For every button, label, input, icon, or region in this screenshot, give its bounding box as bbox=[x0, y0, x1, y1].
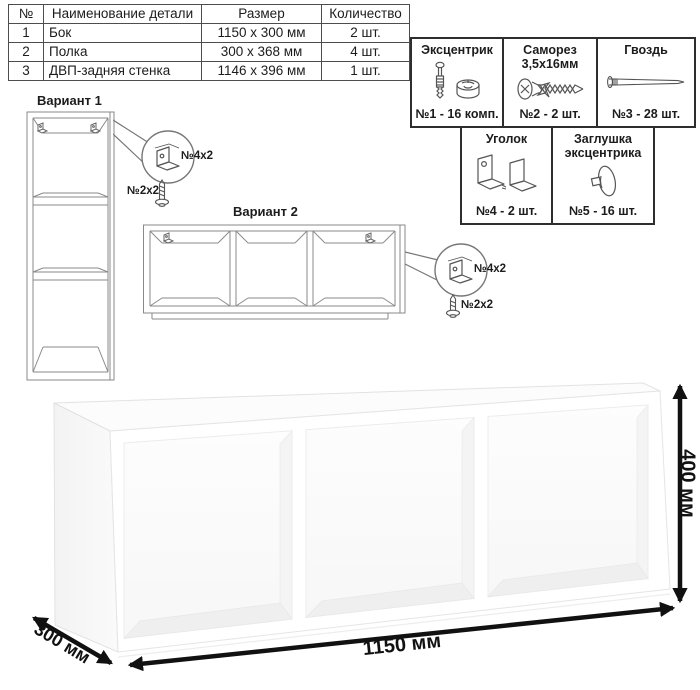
height-dimension-label: 400 мм bbox=[676, 445, 699, 523]
table-row: 2 Полка 300 х 368 мм 4 шт. bbox=[9, 43, 410, 62]
part-qty: 2 шт. bbox=[322, 24, 410, 43]
hardware-count: №1 - 16 комп. bbox=[415, 107, 498, 121]
header-name: Наименование детали bbox=[44, 5, 202, 24]
parts-table: № Наименование детали Размер Количество … bbox=[8, 4, 410, 81]
cam-cap-icon bbox=[553, 160, 653, 204]
angle-bracket-icon bbox=[462, 146, 551, 204]
table-row: 3 ДВП-задняя стенка 1146 х 396 мм 1 шт. bbox=[9, 62, 410, 81]
variant1-callout bbox=[113, 118, 235, 218]
variant2-shelf-drawing bbox=[142, 222, 410, 326]
corner-bracket-icon bbox=[38, 123, 100, 133]
screw-icon bbox=[447, 295, 460, 317]
table-row: 1 Бок 1150 х 300 мм 2 шт. bbox=[9, 24, 410, 43]
nail-icon bbox=[598, 57, 694, 107]
hardware-title: Эксцентрик bbox=[421, 43, 493, 57]
shelf-left-face bbox=[54, 403, 118, 652]
variant2-bracket-label: №4х2 bbox=[474, 263, 506, 275]
part-name: ДВП-задняя стенка bbox=[44, 62, 202, 81]
part-num: 2 bbox=[9, 43, 44, 62]
variant1-screw-label: №2х2 bbox=[127, 185, 159, 197]
header-qty: Количество bbox=[322, 5, 410, 24]
variant1-bracket-label: №4х2 bbox=[181, 150, 213, 162]
hardware-cell-cam-cap: Заглушкаэксцентрика №5 - 16 шт. bbox=[551, 126, 655, 225]
part-name: Полка bbox=[44, 43, 202, 62]
part-qty: 1 шт. bbox=[322, 62, 410, 81]
hardware-count: №5 - 16 шт. bbox=[569, 204, 637, 218]
header-num: № bbox=[9, 5, 44, 24]
variant1-shelf-drawing bbox=[20, 110, 118, 384]
shelf-3d-render bbox=[30, 372, 700, 672]
variant1-title: Вариант 1 bbox=[37, 93, 102, 108]
hardware-cell-screw: Саморез3,5х16мм №2 - 2 шт. bbox=[502, 37, 598, 128]
hardware-cell-nail: Гвоздь №3 - 28 шт. bbox=[596, 37, 696, 128]
hardware-title: Заглушка bbox=[565, 132, 642, 146]
variant2-screw-label: №2х2 bbox=[461, 299, 493, 311]
part-size: 300 х 368 мм bbox=[202, 43, 322, 62]
part-qty: 4 шт. bbox=[322, 43, 410, 62]
part-size: 1146 х 396 мм bbox=[202, 62, 322, 81]
parts-table-header-row: № Наименование детали Размер Количество bbox=[9, 5, 410, 24]
hardware-count: №2 - 2 шт. bbox=[519, 107, 580, 121]
hardware-box-row-1: Эксцентрик bbox=[410, 37, 696, 128]
screw-icon bbox=[504, 71, 596, 107]
variant2-title: Вариант 2 bbox=[233, 204, 298, 219]
corner-bracket-icon bbox=[164, 233, 375, 243]
hardware-title: Уголок bbox=[486, 132, 527, 146]
hardware-cell-angle-bracket: Уголок №4 - 2 шт. bbox=[460, 126, 553, 225]
part-num: 1 bbox=[9, 24, 44, 43]
header-size: Размер bbox=[202, 5, 322, 24]
hardware-title: Саморез bbox=[522, 43, 579, 57]
hardware-box-row-2: Уголок №4 - 2 шт. Заглушкаэксцентрика bbox=[460, 126, 655, 225]
hardware-count: №4 - 2 шт. bbox=[476, 204, 537, 218]
assembly-instruction-sheet: № Наименование детали Размер Количество … bbox=[0, 0, 700, 690]
part-num: 3 bbox=[9, 62, 44, 81]
hardware-title: Гвоздь bbox=[624, 43, 668, 57]
cam-lock-icon bbox=[412, 57, 502, 107]
hardware-cell-cam-lock: Эксцентрик bbox=[410, 37, 504, 128]
hardware-count: №3 - 28 шт. bbox=[612, 107, 680, 121]
part-name: Бок bbox=[44, 24, 202, 43]
part-size: 1150 х 300 мм bbox=[202, 24, 322, 43]
